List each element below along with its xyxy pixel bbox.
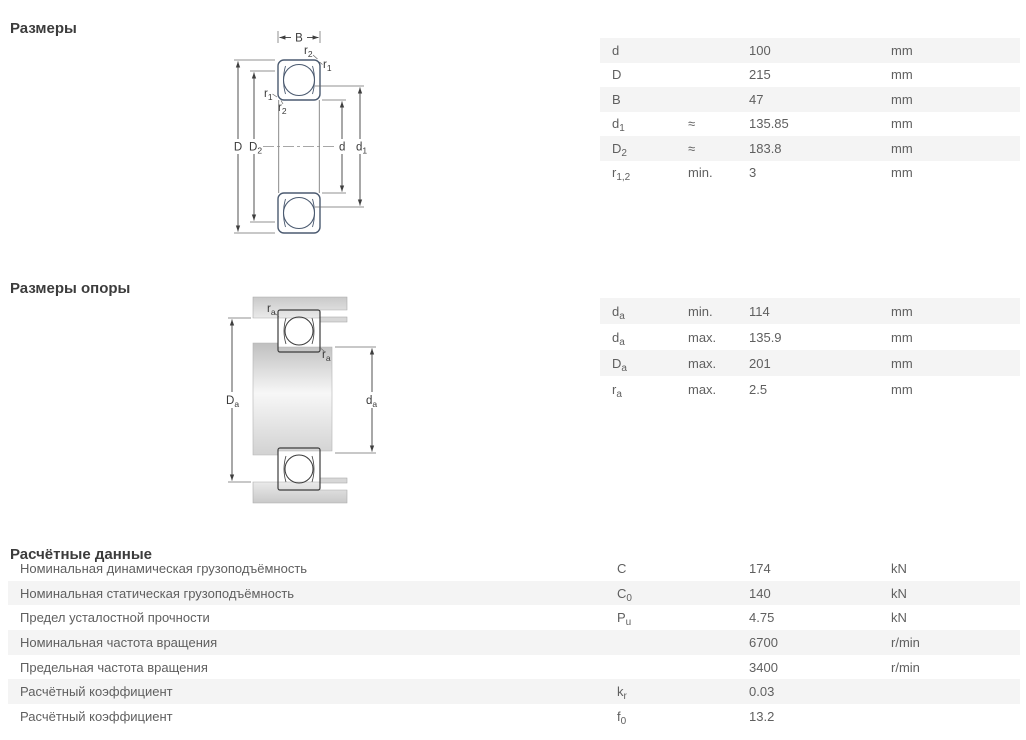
property-label-cell: Расчётный коэффициент (8, 684, 617, 699)
table-row: Предельная частота вращения 3400 r/min (8, 655, 1020, 680)
unit-cell: mm (891, 165, 1020, 180)
value-cell: 114 (749, 304, 891, 319)
value-cell: 13.2 (749, 709, 891, 724)
ball (285, 455, 313, 483)
value-cell: 4.75 (749, 610, 891, 625)
section-heading-abutment: Размеры опоры (10, 280, 130, 297)
unit-cell: mm (891, 382, 1020, 397)
table-row: Номинальная статическая грузоподъёмность… (8, 581, 1020, 606)
qualifier-cell: max. (688, 330, 749, 345)
dim-label-da: da (366, 395, 377, 409)
shield-right (313, 66, 315, 94)
symbol-cell: kr (617, 684, 749, 699)
ball (284, 198, 315, 229)
housing-lip-bottom (320, 478, 347, 483)
qualifier-cell: min. (688, 304, 749, 319)
symbol-cell: C (617, 561, 749, 576)
table-row: d 100 mm (600, 38, 1020, 63)
dim-label-d1: d1 (356, 142, 367, 156)
property-label-cell: Расчётный коэффициент (8, 709, 617, 724)
dim-label-B: B (295, 33, 303, 45)
table-row: Расчётный коэффициент f0 13.2 (8, 704, 1020, 729)
abutment-table: da min. 114 mm da max. 135.9 mm Da max. … (600, 298, 1020, 402)
table-row: Расчётный коэффициент kr 0.03 (8, 679, 1020, 704)
label-r1-top-right: r1 (323, 59, 332, 73)
bearing-section-top (278, 60, 320, 100)
symbol-cell: da (600, 304, 688, 319)
section-heading-dimensions: Размеры (10, 20, 77, 37)
symbol-cell: d (600, 43, 688, 58)
table-row: D2 ≈ 183.8 mm (600, 136, 1020, 161)
shaft (253, 343, 332, 455)
dimensions-table: d 100 mm D 215 mm B 47 mm d1 ≈ 135.85 mm… (600, 38, 1020, 185)
table-row: Номинальная частота вращения 6700 r/min (8, 630, 1020, 655)
value-cell: 2.5 (749, 382, 891, 397)
symbol-cell: f0 (617, 709, 749, 724)
qualifier-cell: max. (688, 382, 749, 397)
value-cell: 100 (749, 43, 891, 58)
value-cell: 201 (749, 356, 891, 371)
table-row: da max. 135.9 mm (600, 324, 1020, 350)
table-row: d1 ≈ 135.85 mm (600, 112, 1020, 137)
table-row: da min. 114 mm (600, 298, 1020, 324)
unit-cell: r/min (891, 660, 1020, 675)
property-label-cell: Предел усталостной прочности (8, 610, 617, 625)
ball (285, 317, 313, 345)
property-label-cell: Предельная частота вращения (8, 660, 617, 675)
symbol-cell: B (600, 92, 688, 107)
unit-cell: r/min (891, 635, 1020, 650)
value-cell: 6700 (749, 635, 891, 650)
unit-cell: mm (891, 356, 1020, 371)
value-cell: 135.9 (749, 330, 891, 345)
unit-cell: mm (891, 67, 1020, 82)
calculation-table: Номинальная динамическая грузоподъёмност… (8, 556, 1020, 729)
unit-cell: mm (891, 43, 1020, 58)
table-row: B 47 mm (600, 87, 1020, 112)
value-cell: 183.8 (749, 141, 891, 156)
property-label-cell: Номинальная статическая грузоподъёмность (8, 586, 617, 601)
label-r1-left: r1 (264, 88, 273, 102)
value-cell: 174 (749, 561, 891, 576)
unit-cell: mm (891, 116, 1020, 131)
value-cell: 215 (749, 67, 891, 82)
table-row: D 215 mm (600, 63, 1020, 88)
unit-cell: mm (891, 330, 1020, 345)
shield-left (284, 66, 286, 94)
value-cell: 47 (749, 92, 891, 107)
symbol-cell: r1,2 (600, 165, 688, 180)
ball (284, 65, 315, 96)
shield-right (313, 199, 315, 227)
dim-label-D: D (234, 142, 242, 154)
value-cell: 3400 (749, 660, 891, 675)
symbol-cell: Pu (617, 610, 749, 625)
symbol-cell: da (600, 330, 688, 345)
symbol-cell: D (600, 67, 688, 82)
value-cell: 3 (749, 165, 891, 180)
table-row: ra max. 2.5 mm (600, 376, 1020, 402)
unit-cell: mm (891, 304, 1020, 319)
value-cell: 0.03 (749, 684, 891, 699)
unit-cell: kN (891, 610, 1020, 625)
value-cell: 140 (749, 586, 891, 601)
property-label-cell: Номинальная динамическая грузоподъёмност… (8, 561, 617, 576)
dimension-da: da (335, 347, 377, 453)
unit-cell: mm (891, 141, 1020, 156)
dimension-Da: Da (226, 318, 251, 482)
dimension-B: B (278, 31, 320, 45)
dim-label-d: d (339, 142, 345, 154)
qualifier-cell: min. (688, 165, 749, 180)
abutment-dimensions-diagram: Da da ra ra (225, 285, 395, 515)
bearing-section-bottom (278, 193, 320, 233)
table-row: Предел усталостной прочности Pu 4.75 kN (8, 605, 1020, 630)
qualifier-cell: ≈ (688, 141, 749, 156)
symbol-cell: ra (600, 382, 688, 397)
symbol-cell: d1 (600, 116, 688, 131)
dim-label-D2: D2 (249, 142, 262, 156)
housing-bottom (253, 482, 347, 503)
symbol-cell: Da (600, 356, 688, 371)
label-r2-left-bottom: r2 (278, 102, 287, 116)
symbol-cell: C0 (617, 586, 749, 601)
label-r2-top: r2 (304, 45, 313, 59)
shield-left (284, 199, 286, 227)
table-row: Da max. 201 mm (600, 350, 1020, 376)
unit-cell: mm (891, 92, 1020, 107)
qualifier-cell: ≈ (688, 116, 749, 131)
bearing-cross-section-diagram: B D D2 d (225, 22, 375, 244)
table-row: Номинальная динамическая грузоподъёмност… (8, 556, 1020, 581)
qualifier-cell: max. (688, 356, 749, 371)
table-row: r1,2 min. 3 mm (600, 161, 1020, 186)
housing-lip-top (320, 317, 347, 322)
dim-label-Da: Da (226, 395, 239, 409)
unit-cell: kN (891, 586, 1020, 601)
symbol-cell: D2 (600, 141, 688, 156)
radius-labels: r2 r1 r1 r2 (264, 45, 332, 116)
value-cell: 135.85 (749, 116, 891, 131)
unit-cell: kN (891, 561, 1020, 576)
property-label-cell: Номинальная частота вращения (8, 635, 617, 650)
